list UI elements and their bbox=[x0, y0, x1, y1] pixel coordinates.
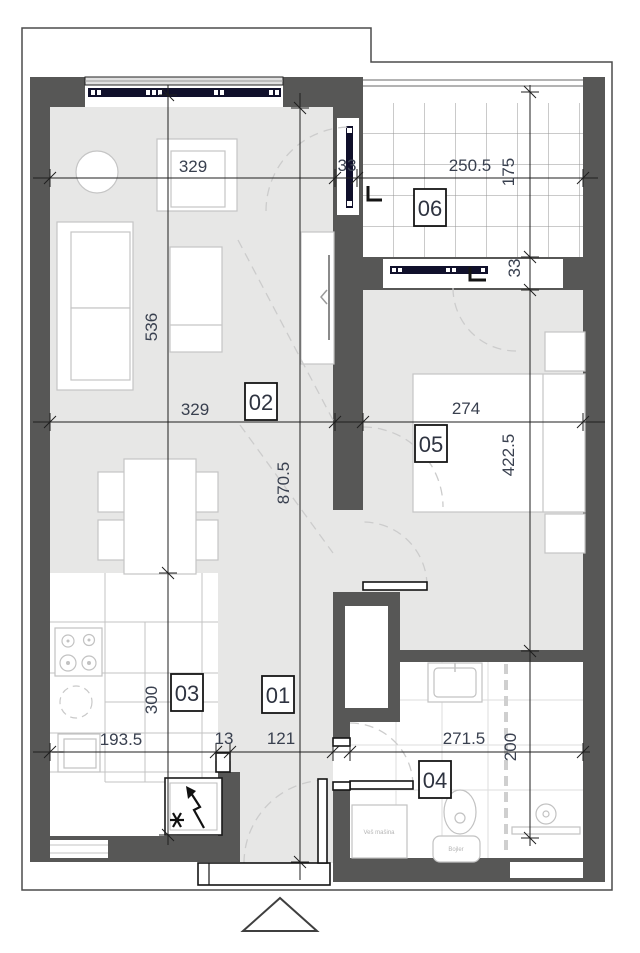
wall-opening-bottom-left bbox=[50, 840, 108, 858]
room-label-01: 01 bbox=[262, 676, 294, 713]
wall-niche-bottom-right bbox=[510, 862, 583, 878]
nightstand-top bbox=[545, 332, 585, 371]
wardrobe-hall bbox=[301, 232, 334, 364]
window-living-top bbox=[85, 74, 283, 107]
dim-bathroom-width: 271.5 bbox=[443, 729, 486, 748]
window-bedroom-balcony-door bbox=[383, 259, 563, 288]
room-label-06: 06 bbox=[414, 189, 446, 226]
dim-partition: 13 bbox=[215, 729, 234, 748]
wall-left bbox=[30, 107, 50, 836]
shaft-void bbox=[345, 606, 388, 708]
bathroom-door-leaf bbox=[350, 781, 413, 789]
room-02-number: 02 bbox=[249, 390, 273, 415]
electrical-panel-icon bbox=[165, 778, 222, 835]
room-label-05: 05 bbox=[415, 425, 447, 462]
entrance-triangle-icon bbox=[243, 898, 317, 931]
dim-mid-living-width: 329 bbox=[181, 400, 209, 419]
bedroom-door-leaf bbox=[363, 582, 427, 590]
room-label-02: 02 bbox=[245, 383, 277, 420]
boiler-label: Bojler bbox=[448, 847, 463, 853]
dim-kitchen-depth: 300 bbox=[142, 686, 161, 714]
floor-plan-canvas: Bojler Veš mašina bbox=[0, 0, 640, 948]
shower-head-icon bbox=[536, 804, 556, 824]
shower-drain bbox=[512, 827, 580, 834]
bathroom-door-post-bottom bbox=[333, 782, 350, 790]
bathroom-door-post-top bbox=[333, 738, 350, 746]
dim-living-length: 536 bbox=[142, 313, 161, 341]
dim-bathroom-depth: 200 bbox=[501, 733, 520, 761]
boiler-unit: Bojler bbox=[433, 836, 480, 862]
dim-bedroom-length: 422.5 bbox=[499, 434, 518, 477]
kitchen-partition-stub bbox=[216, 753, 230, 772]
wall-right bbox=[583, 77, 605, 882]
wall-bath-top bbox=[400, 650, 583, 662]
washing-machine-label: Veš mašina bbox=[363, 830, 395, 836]
bath-sink-icon bbox=[428, 663, 482, 702]
round-table bbox=[76, 151, 118, 193]
dim-top-wall: 33 bbox=[338, 156, 357, 175]
kitchen-sink-icon bbox=[52, 734, 100, 772]
dim-kitchen-width: 193.5 bbox=[100, 730, 143, 749]
entrance-door-leaf bbox=[198, 863, 330, 885]
room-label-03: 03 bbox=[171, 674, 203, 711]
nightstand-bottom bbox=[545, 514, 585, 553]
bedroom-door-gap bbox=[333, 510, 363, 592]
dining-table bbox=[124, 459, 196, 574]
floor-plan-page: Bojler Veš mašina bbox=[0, 0, 640, 948]
dim-apartment-length: 870.5 bbox=[274, 462, 293, 505]
tv-cabinet bbox=[170, 247, 222, 352]
room-label-04: 04 bbox=[419, 761, 451, 798]
room-06-number: 06 bbox=[418, 196, 442, 221]
room-01-number: 01 bbox=[266, 683, 290, 708]
entrance-door-open-leaf bbox=[318, 779, 327, 863]
room-04-number: 04 bbox=[423, 768, 447, 793]
dim-top-living-width: 329 bbox=[179, 157, 207, 176]
balcony-tiles bbox=[363, 103, 583, 257]
stove-icon bbox=[55, 628, 102, 676]
room-03-number: 03 bbox=[175, 681, 199, 706]
dim-balcony-width: 250.5 bbox=[449, 156, 492, 175]
dim-hall-width: 121 bbox=[267, 729, 295, 748]
sofa bbox=[57, 222, 133, 390]
dim-balcony-wall: 33 bbox=[505, 259, 524, 278]
room-05-number: 05 bbox=[419, 432, 443, 457]
wall-bath-left-lower bbox=[333, 783, 350, 858]
dim-balcony-depth: 175 bbox=[499, 158, 518, 186]
dim-bedroom-width: 274 bbox=[452, 399, 480, 418]
washing-machine: Veš mašina bbox=[352, 805, 407, 858]
